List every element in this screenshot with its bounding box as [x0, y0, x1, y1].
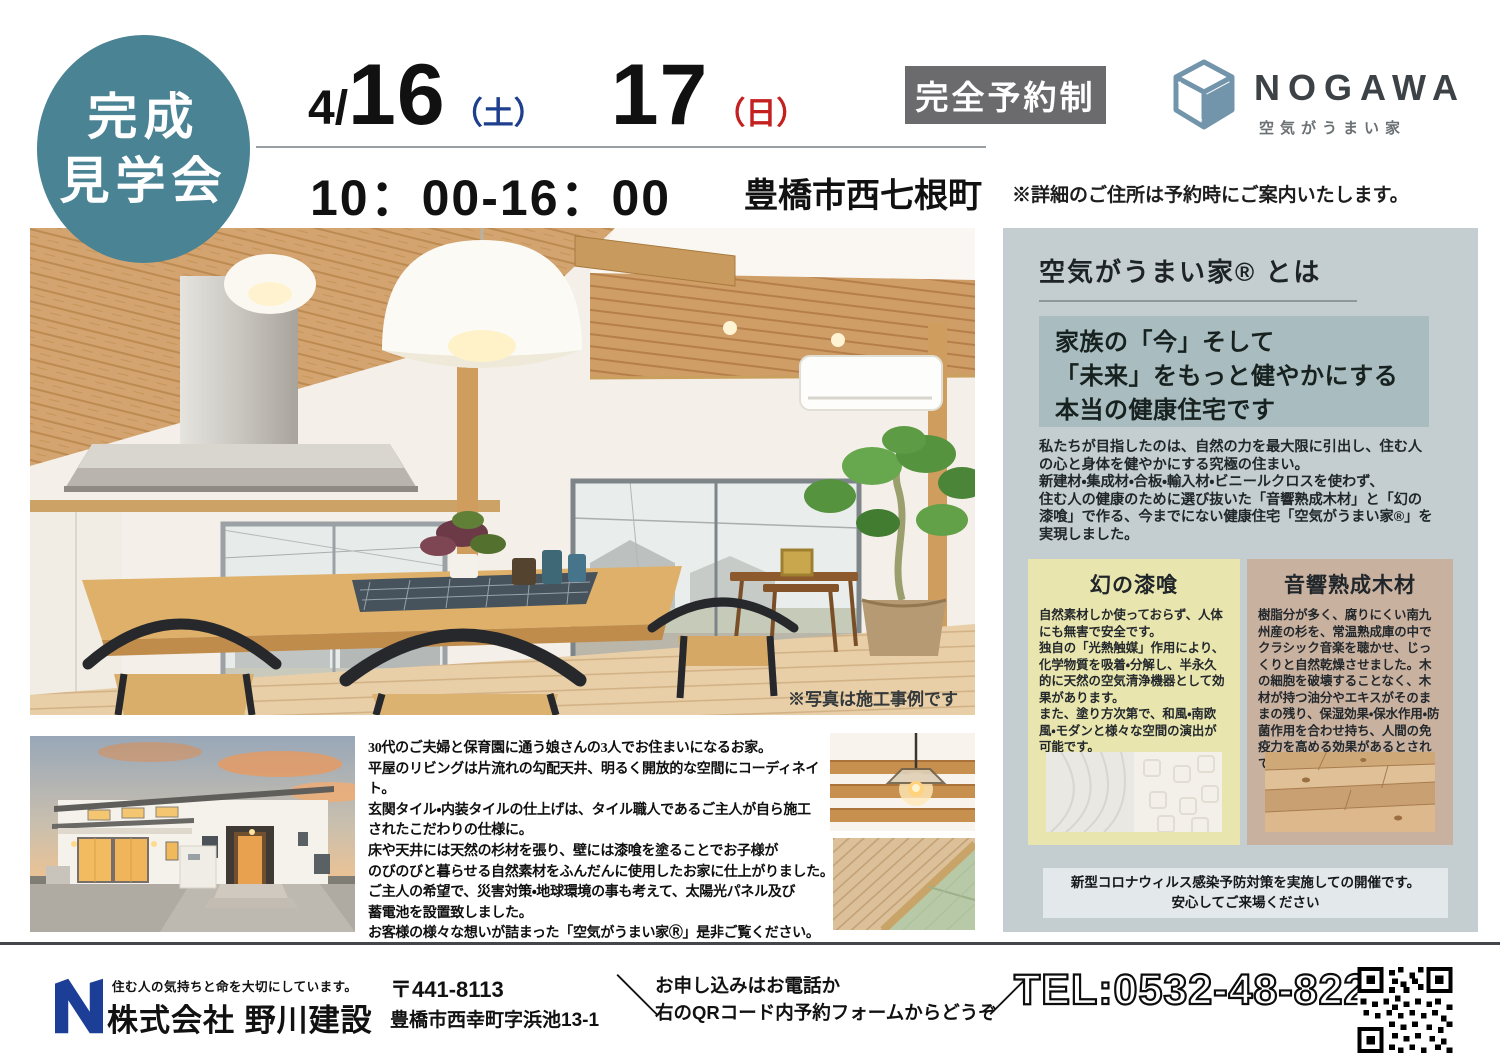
- nogawa-logo: NOGAWA 空気がうまい家: [1170, 58, 1466, 138]
- logo-tagline: 空気がうまい家: [1259, 117, 1466, 138]
- event-dates: 4/ 16 （土） 17 （日）: [308, 46, 807, 145]
- panel-body-text: 私たちが目指したのは、自然の力を最大限に引出し、住む人 の心と身体を健やかにする…: [1039, 439, 1449, 545]
- circle-line1: 完成: [88, 92, 200, 142]
- company-tagline: 住む人の気持ちと命を大切にしています。: [112, 976, 357, 995]
- weekday-sunday: （日）: [714, 88, 807, 133]
- main-interior-photo: ※写真は施工事例です: [30, 228, 975, 715]
- location-note: ※詳細のご住所は予約時にご案内いたします。: [1012, 180, 1409, 207]
- panel-heading-underline: [1039, 300, 1357, 302]
- reservation-required-badge: 完全予約制: [905, 66, 1106, 124]
- material-text-wood: 樹脂分が多く、腐りにくい南九州産の杉を、常温熟成庫の中でクラシック音楽を聴かせ、…: [1258, 607, 1442, 772]
- circle-line2: 見学会: [60, 156, 228, 206]
- date-day-17: 17: [611, 46, 709, 145]
- main-photo-caption: ※写真は施工事例です: [788, 689, 958, 709]
- nogawa-cube-icon: [1170, 58, 1238, 130]
- event-time: 10：00-16：00: [310, 158, 671, 230]
- material-title-plaster: 幻の漆喰: [1028, 569, 1240, 599]
- home-description: 30代のご夫婦と保育園に通う娘さんの3人でお住まいになるお家。 平屋のリビングは…: [368, 739, 846, 945]
- cta-slash-left: ＼: [615, 975, 659, 1019]
- panel-heading: 空気がうまい家® とは: [1039, 252, 1321, 289]
- wood-tatami-photo: [833, 838, 975, 930]
- panel-lead-box: 家族の「今」そして 「未来」をもっと健やかにする 本当の健康住宅です: [1039, 316, 1429, 427]
- material-box-plaster: 幻の漆喰 自然素材しか使っておらず、人体にも無害で安全です。 独自の「光熱触媒」…: [1028, 559, 1240, 845]
- info-panel: 空気がうまい家® とは 家族の「今」そして 「未来」をもっと健やかにする 本当の…: [1003, 228, 1478, 932]
- header-divider: [256, 146, 986, 148]
- date-day-16: 16: [348, 46, 446, 145]
- nogawa-n-icon: [55, 973, 103, 1039]
- weekday-saturday: （土）: [452, 88, 545, 133]
- material-text-plaster: 自然素材しか使っておらず、人体にも無害で安全です。 独自の「光熱触媒」作用により…: [1039, 607, 1229, 756]
- material-title-wood: 音響熟成木材: [1247, 569, 1453, 599]
- plaster-texture-photo: [1046, 752, 1222, 832]
- ceiling-pendant-photo: [830, 733, 975, 831]
- phone-number: TEL:0532-48-8221: [1014, 966, 1393, 1015]
- logo-wordmark: NOGAWA: [1254, 70, 1466, 106]
- company-address: 豊橋市西幸町字浜池13-1: [390, 1005, 599, 1032]
- date-month: 4/: [308, 81, 348, 136]
- covid-notice-box: 新型コロナウィルス感染予防対策を実施しての開催です。 安心してご来場ください: [1043, 868, 1448, 918]
- event-type-circle-badge: 完成 見学会: [37, 35, 250, 263]
- cta-text: お申し込みはお電話か 右のQRコード内予約フォームからどうぞ: [655, 972, 997, 1026]
- exterior-house-photo: [30, 736, 355, 932]
- footer-divider: [0, 942, 1500, 945]
- postal-code: 〒441-8113: [390, 972, 504, 1004]
- wood-floor-photo: [1265, 752, 1435, 832]
- qr-code: [1357, 967, 1453, 1053]
- company-name: 株式会社 野川建設: [107, 995, 373, 1040]
- material-box-wood: 音響熟成木材 樹脂分が多く、腐りにくい南九州産の杉を、常温熟成庫の中でクラシック…: [1247, 559, 1453, 845]
- flyer-page: 完成 見学会 4/ 16 （土） 17 （日） 完全予約制 NOGAWA 空気が…: [0, 0, 1500, 1059]
- event-location: 豊橋市西七根町: [744, 168, 982, 217]
